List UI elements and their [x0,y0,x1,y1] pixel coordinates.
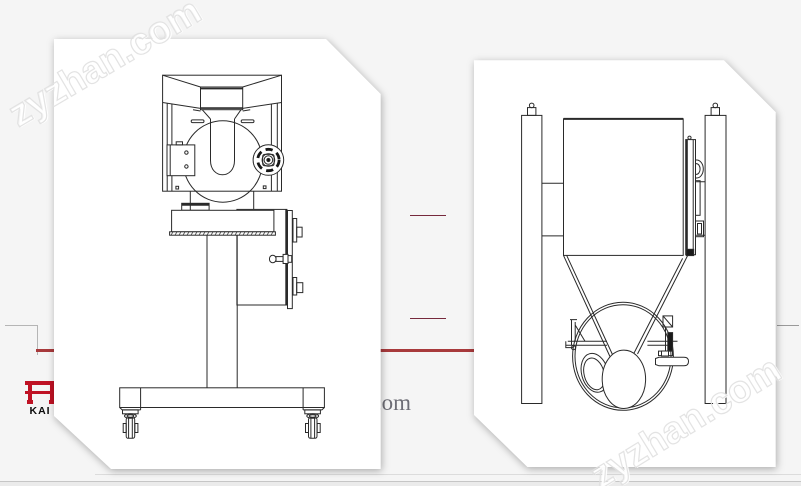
svg-text:zyzhan.com: zyzhan.com [583,349,789,486]
svg-text:zyzhan.com: zyzhan.com [1,0,208,135]
